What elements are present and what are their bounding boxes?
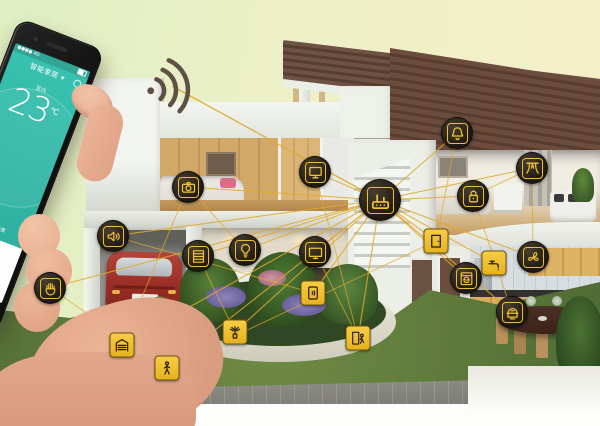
wifi-router-icon <box>359 179 401 221</box>
lawn-sensor-icon <box>155 356 180 381</box>
smart-bulb-icon <box>229 234 261 266</box>
roof-alarm-icon <box>441 117 473 149</box>
smart-tv-icon <box>299 236 331 268</box>
hand-sensor-icon <box>34 272 66 304</box>
kitchen-fan-icon <box>517 241 549 273</box>
garden-sprinkler-icon <box>223 320 248 345</box>
wall-switch-icon <box>301 281 326 306</box>
washing-machine-icon <box>450 262 482 294</box>
smart-faucet-icon <box>482 251 507 276</box>
rice-cooker-icon <box>496 296 528 328</box>
smart-home-illustration: ●●●● 4G 智能家居 ▾ 室内 23℃ ✓ 我的设备 场景 18 <box>0 0 600 426</box>
audio-speaker-icon <box>97 220 129 252</box>
entry-guard-icon <box>346 326 371 351</box>
study-computer-icon <box>299 156 331 188</box>
smart-curtain-icon <box>516 152 548 184</box>
device-icon-layer <box>0 0 600 426</box>
door-sensor-icon <box>424 229 449 254</box>
door-lock-icon <box>457 180 489 212</box>
security-camera-icon <box>172 171 204 203</box>
smart-blinds-icon <box>182 240 214 272</box>
garage-door-icon <box>110 333 135 358</box>
